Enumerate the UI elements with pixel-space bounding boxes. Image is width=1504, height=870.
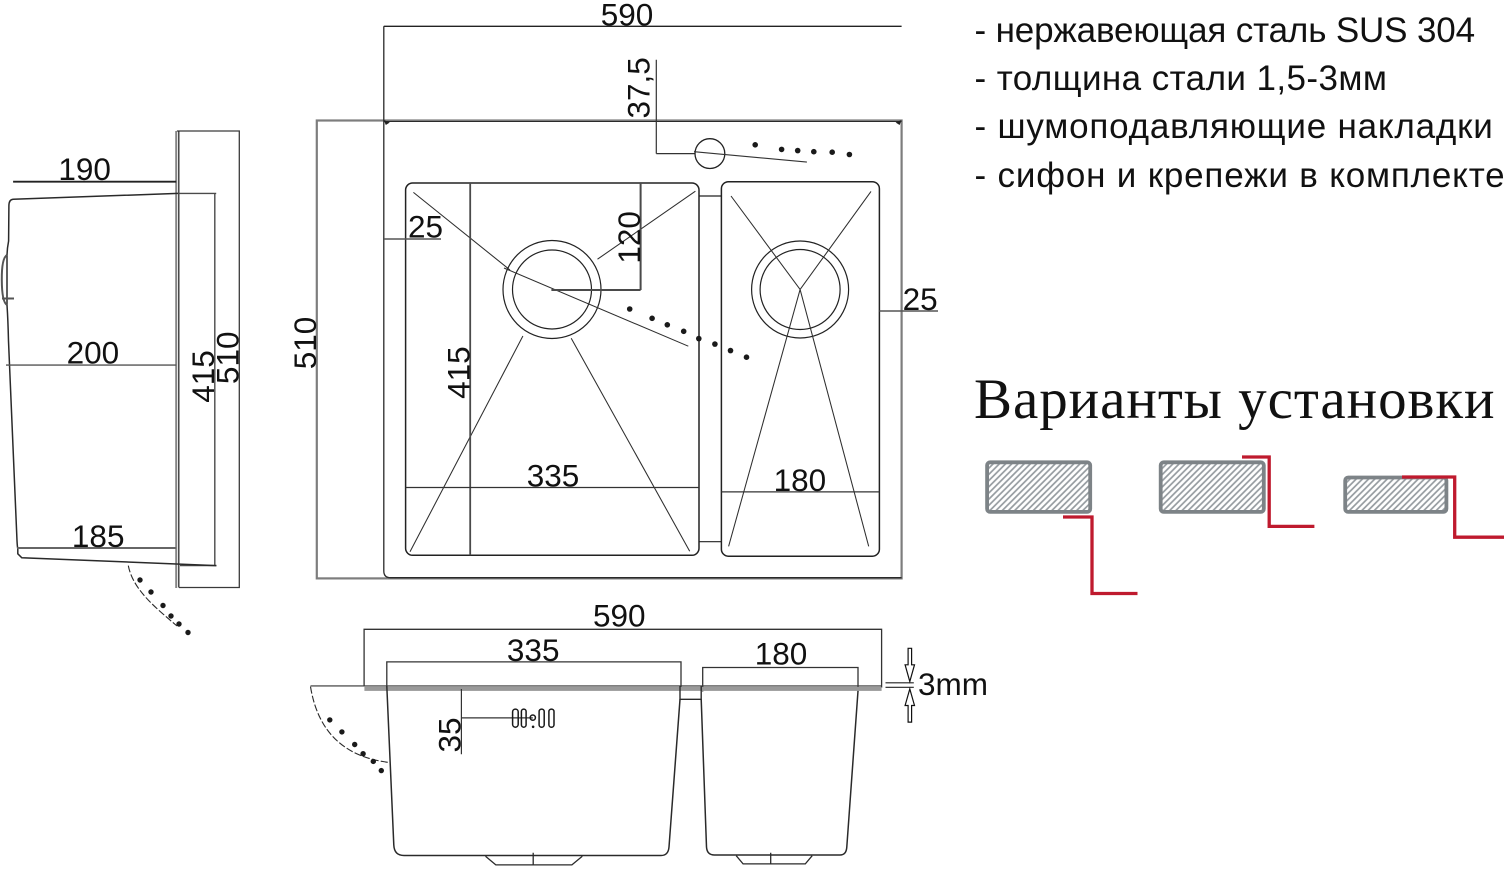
svg-text:180: 180 (755, 636, 808, 672)
svg-text:335: 335 (527, 458, 580, 494)
svg-text:Варианты установки: Варианты установки (974, 368, 1496, 431)
svg-text:415: 415 (440, 346, 476, 399)
svg-text:- нержавеющая сталь SUS 304: - нержавеющая сталь SUS 304 (975, 11, 1475, 50)
svg-text:590: 590 (601, 0, 654, 33)
svg-text:415: 415 (185, 350, 221, 403)
svg-text:185: 185 (72, 518, 125, 554)
svg-text:180: 180 (774, 462, 827, 498)
svg-text:335: 335 (507, 632, 560, 668)
svg-text:3mm: 3mm (918, 666, 988, 702)
svg-text:35: 35 (432, 717, 468, 752)
svg-text:25: 25 (408, 209, 443, 245)
svg-text:510: 510 (287, 317, 323, 370)
svg-text:25: 25 (903, 281, 938, 317)
svg-text:120: 120 (611, 211, 647, 264)
svg-text:190: 190 (58, 151, 111, 187)
svg-text:590: 590 (593, 598, 646, 634)
svg-text:- сифон и крепежи в комплекте: - сифон и крепежи в комплекте (975, 156, 1504, 195)
svg-text:- толщина стали 1,5-3мм: - толщина стали 1,5-3мм (975, 59, 1388, 98)
svg-text:37,5: 37,5 (621, 57, 657, 118)
svg-text:200: 200 (67, 335, 120, 371)
svg-text:- шумоподавляющие накладки: - шумоподавляющие накладки (975, 107, 1494, 146)
